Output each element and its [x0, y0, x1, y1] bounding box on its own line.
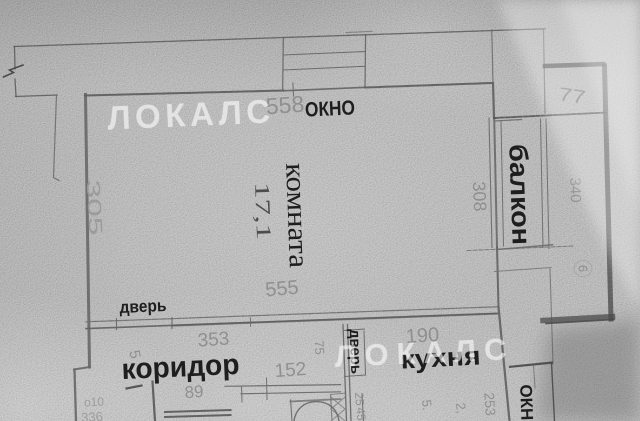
- svg-text:балкон: балкон: [503, 144, 537, 246]
- svg-text:190: 190: [405, 324, 440, 348]
- svg-text:555: 555: [264, 277, 299, 302]
- svg-text:253: 253: [481, 392, 499, 417]
- svg-text:ЛОКАЛС: ЛОКАЛС: [334, 331, 515, 374]
- svg-text:336: 336: [81, 409, 103, 421]
- svg-text:6: 6: [576, 265, 591, 272]
- svg-text:дверь: дверь: [119, 296, 167, 317]
- svg-text:комната: комната: [279, 162, 314, 269]
- svg-text:5: 5: [125, 349, 143, 360]
- svg-text:45: 45: [354, 407, 369, 421]
- svg-text:77: 77: [557, 84, 587, 109]
- svg-text:ОКНО: ОКНО: [516, 384, 537, 421]
- svg-text:о10: о10: [84, 394, 105, 409]
- svg-text:75: 75: [312, 340, 328, 355]
- svg-text:558: 558: [265, 91, 305, 120]
- svg-text:коридор: коридор: [121, 349, 240, 386]
- svg-text:ОКНО: ОКНО: [305, 96, 356, 121]
- svg-text:340: 340: [566, 177, 584, 203]
- svg-text:дверь: дверь: [346, 329, 365, 375]
- svg-text:25: 25: [352, 392, 367, 407]
- svg-text:2,: 2,: [453, 402, 469, 414]
- svg-text:ЛОКАЛС: ЛОКАЛС: [107, 92, 276, 136]
- svg-text:5.: 5.: [419, 399, 435, 411]
- svg-text:308: 308: [469, 181, 491, 212]
- svg-text:89: 89: [184, 382, 204, 402]
- svg-text:353: 353: [197, 328, 230, 351]
- svg-text:305: 305: [82, 179, 106, 236]
- svg-text:кухня: кухня: [400, 340, 481, 374]
- svg-text:17,1: 17,1: [250, 182, 276, 241]
- svg-text:152: 152: [274, 359, 307, 382]
